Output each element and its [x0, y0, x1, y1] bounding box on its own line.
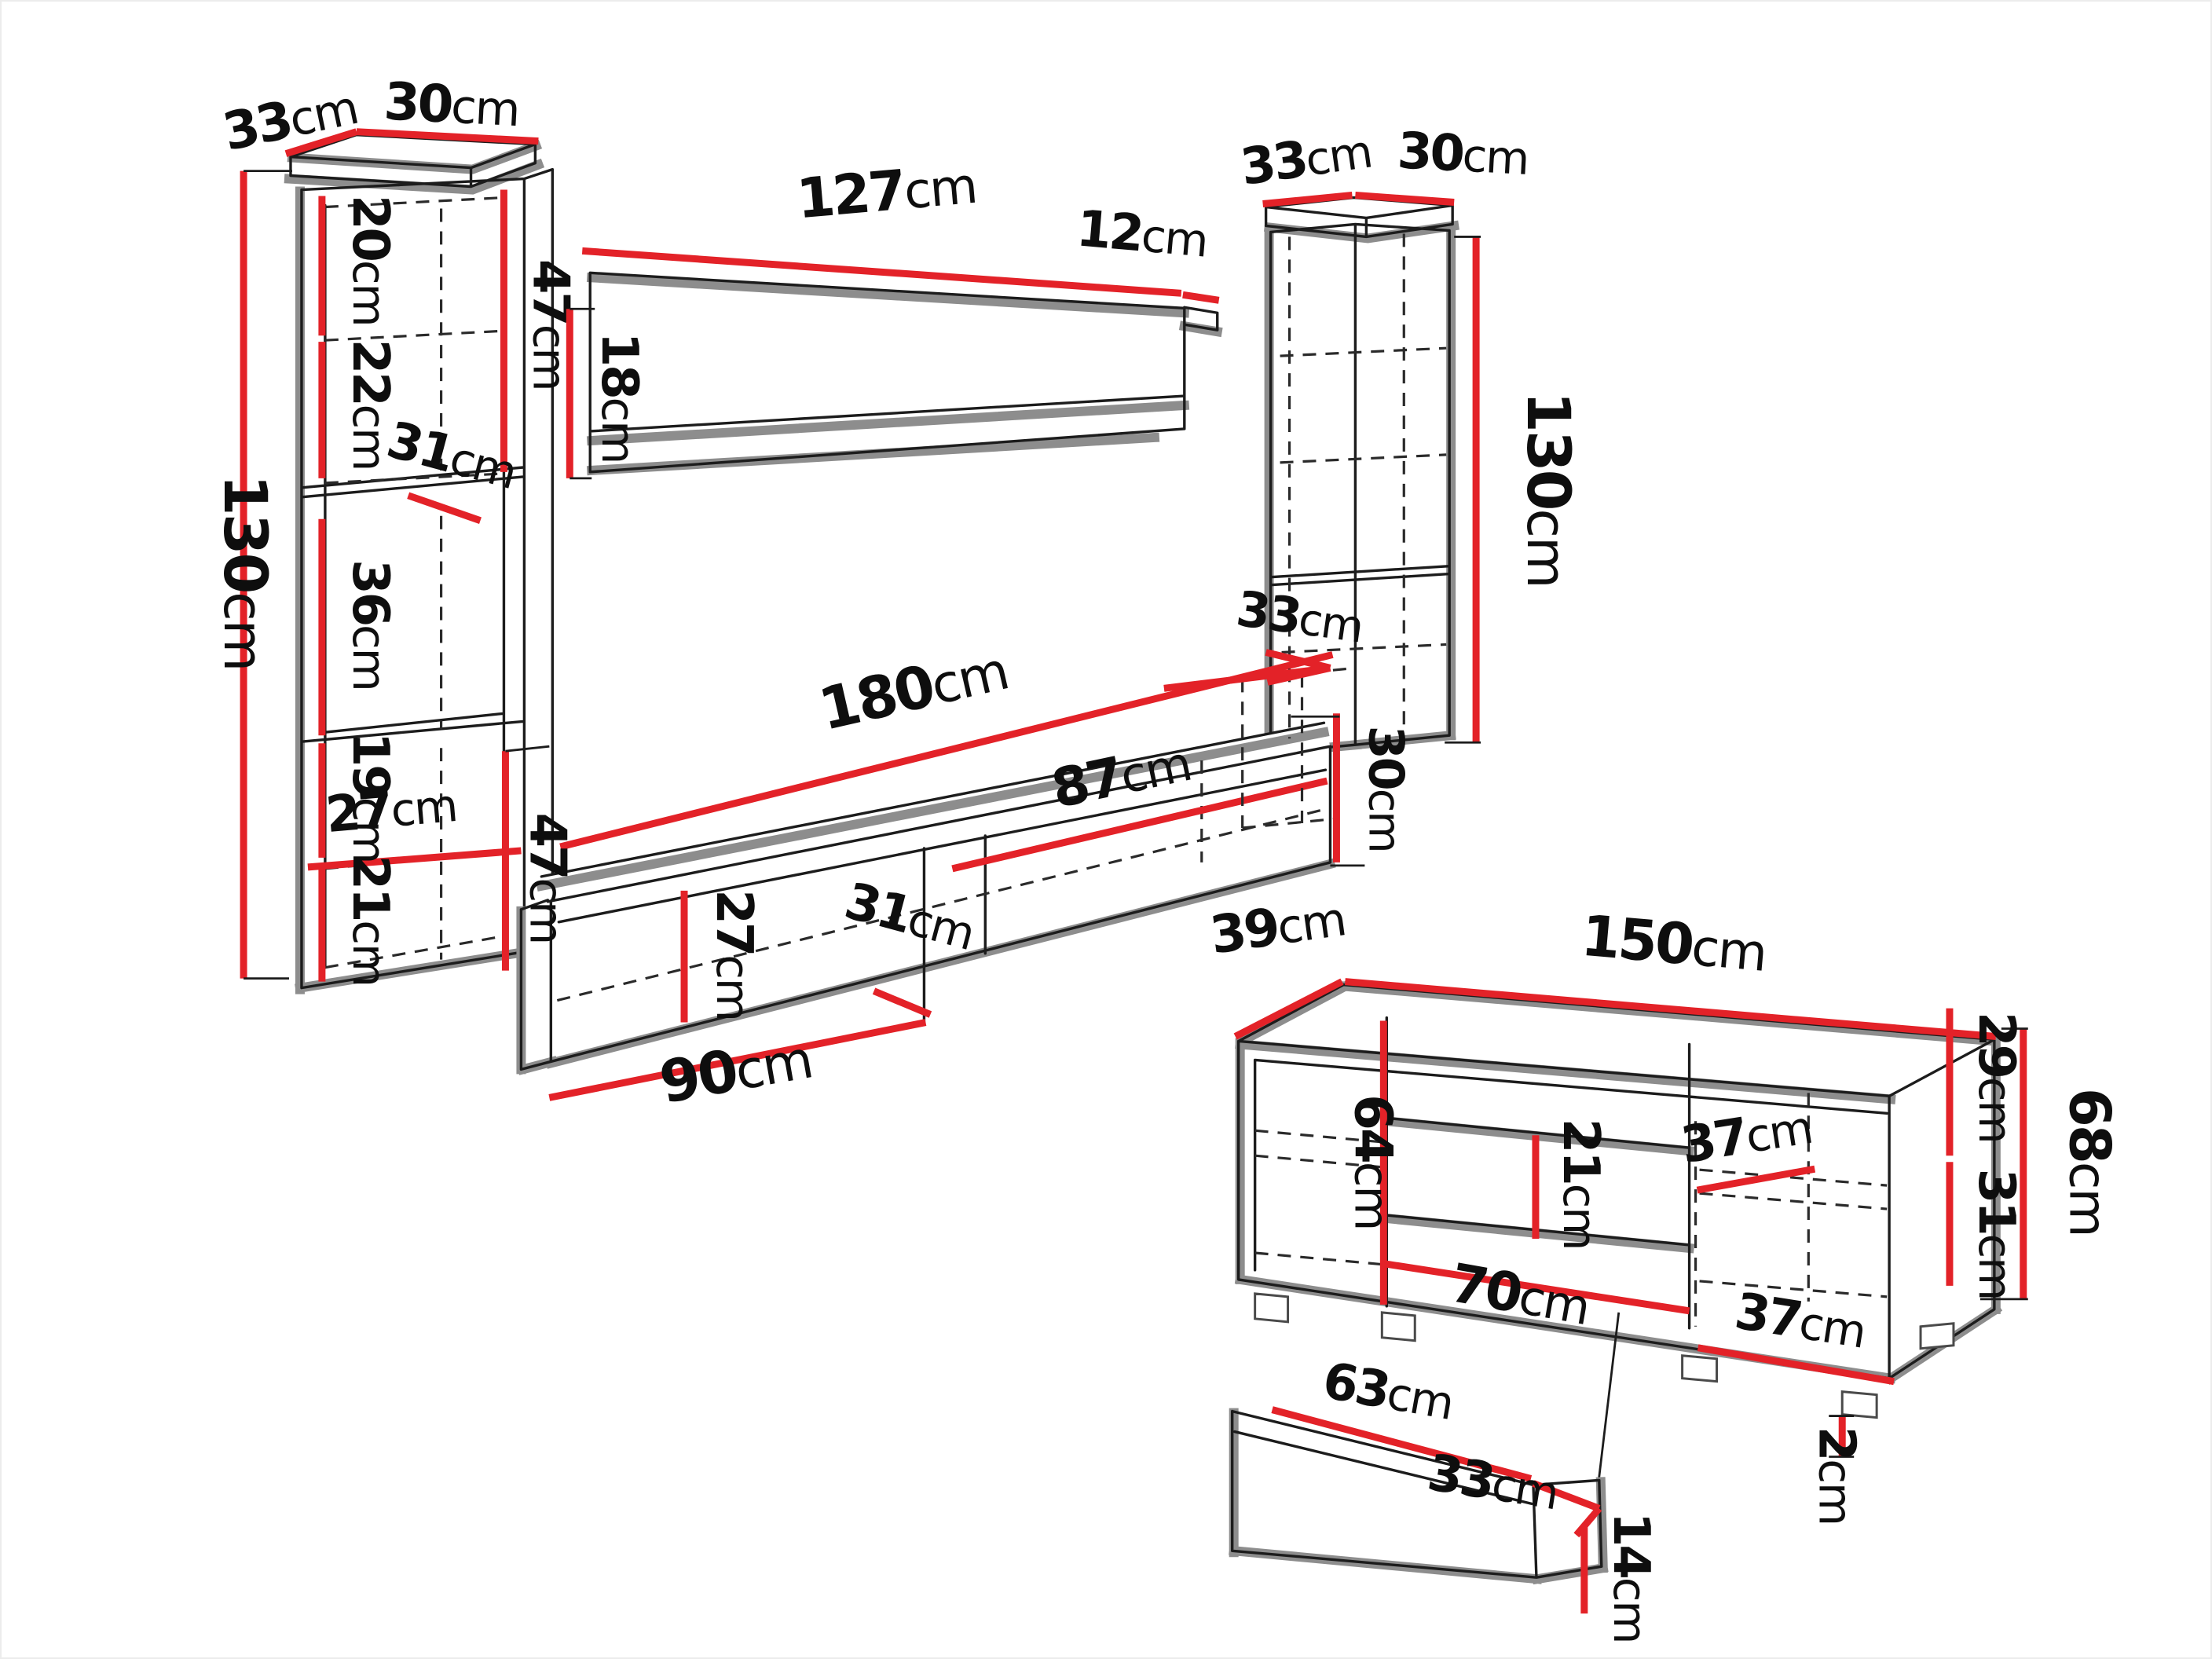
sideboard-left-inner-height-label: 64cm — [1342, 1094, 1403, 1229]
sideboard-foot-height-label: 2cm — [1807, 1426, 1865, 1525]
tv-stand-width-label: 180cm — [813, 635, 1014, 744]
wall-shelf-end-depth-label: 12cm — [1075, 200, 1210, 269]
sideboard-drawer-inner-height-label: 21cm — [1551, 1119, 1610, 1250]
left-cabinet-section5-label: 21cm — [341, 855, 399, 987]
right-cabinet-base-height-label: 30cm — [1357, 726, 1414, 852]
wall-shelf: 127cm 12cm 18cm — [569, 152, 1218, 478]
sideboard-depth-label: 39cm — [1207, 887, 1349, 965]
drawer-height-label: 14cm — [1602, 1512, 1660, 1643]
tv-stand: 180cm 87cm 27cm 31cm 90cm 47cm — [505, 635, 1332, 1117]
diagram-canvas: 33cm 30cm 130cm 20cm 22cm 31cm 36cm 19cm… — [2, 2, 2210, 1657]
sideboard-width-label: 150cm — [1579, 903, 1769, 984]
tv-stand-height-label: 47cm — [518, 813, 576, 944]
drawer-width-label: 63cm — [1319, 1352, 1458, 1432]
wall-shelf-height-label: 18cm — [590, 332, 648, 463]
right-cabinet-top-width-label: 30cm — [1396, 122, 1529, 187]
sideboard-right-upper-height-label: 29cm — [1967, 1012, 2025, 1143]
right-cabinet-top-depth-label: 33cm — [1237, 122, 1375, 197]
right-cabinet-height-label: 130cm — [1514, 391, 1583, 587]
left-cabinet-section3-label: 36cm — [341, 559, 399, 690]
wall-shelf-width-label: 127cm — [794, 152, 979, 232]
drawer: 63cm 33cm 14cm — [1232, 1352, 1660, 1643]
tv-stand-left-section-label: 90cm — [655, 1024, 817, 1117]
furniture-dimensions-diagram: 33cm 30cm 130cm 20cm 22cm 31cm 36cm 19cm… — [0, 0, 2212, 1659]
left-cabinet-section1-label: 20cm — [341, 195, 399, 326]
tv-stand-inner-height-label: 27cm — [705, 889, 763, 1020]
sideboard-height-label: 68cm — [2057, 1088, 2123, 1236]
left-cabinet-height-label: 130cm — [211, 474, 280, 670]
sideboard-right-lower-height-label: 31cm — [1967, 1169, 2025, 1300]
left-cabinet-top-width-label: 30cm — [383, 71, 521, 138]
